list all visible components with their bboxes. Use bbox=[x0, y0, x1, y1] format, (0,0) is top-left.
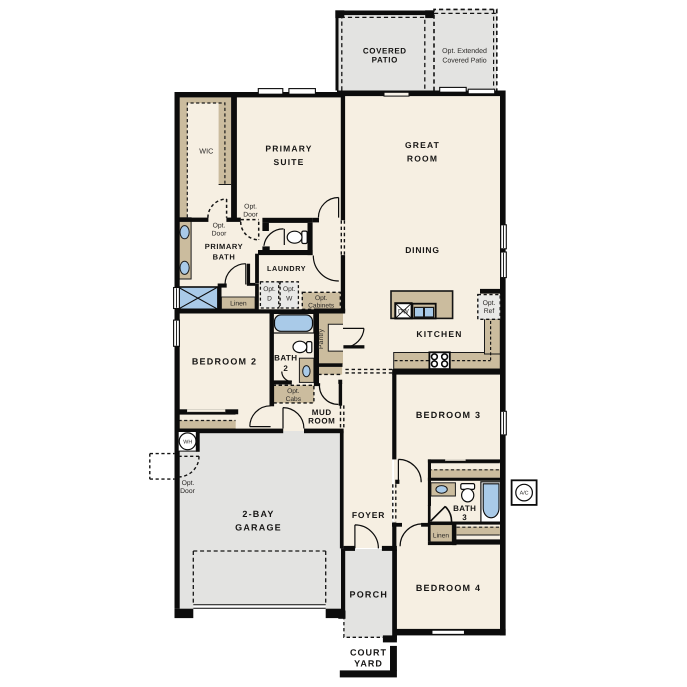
svg-text:2: 2 bbox=[283, 364, 288, 373]
svg-text:Pantry: Pantry bbox=[318, 328, 325, 349]
svg-text:Covered Patio: Covered Patio bbox=[442, 57, 486, 65]
svg-text:W: W bbox=[286, 296, 293, 303]
svg-text:D: D bbox=[267, 296, 272, 303]
svg-text:Opt.: Opt. bbox=[244, 203, 257, 210]
svg-text:WIC: WIC bbox=[199, 147, 213, 156]
svg-text:SUITE: SUITE bbox=[273, 157, 304, 167]
svg-text:PRIMARY: PRIMARY bbox=[265, 144, 312, 154]
svg-text:Opt.: Opt. bbox=[483, 300, 496, 307]
svg-text:Opt.: Opt. bbox=[213, 223, 226, 230]
svg-text:COURT: COURT bbox=[350, 648, 387, 658]
svg-text:PATIO: PATIO bbox=[372, 56, 398, 65]
svg-text:Cabinets: Cabinets bbox=[308, 302, 335, 309]
svg-text:Ref: Ref bbox=[484, 308, 495, 315]
svg-text:ROOM: ROOM bbox=[407, 154, 438, 164]
svg-text:PORCH: PORCH bbox=[350, 589, 389, 599]
svg-text:Door: Door bbox=[243, 211, 258, 218]
svg-text:Cabs: Cabs bbox=[286, 396, 302, 403]
svg-text:A/C: A/C bbox=[520, 491, 529, 497]
svg-text:Opt.: Opt. bbox=[315, 295, 328, 302]
svg-text:Opt.: Opt. bbox=[263, 286, 276, 293]
svg-text:LAUNDRY: LAUNDRY bbox=[267, 264, 306, 273]
svg-text:BEDROOM 2: BEDROOM 2 bbox=[192, 356, 257, 366]
svg-text:BEDROOM 4: BEDROOM 4 bbox=[416, 583, 481, 593]
svg-text:COVERED: COVERED bbox=[363, 46, 407, 55]
svg-text:Linen: Linen bbox=[230, 301, 247, 308]
svg-text:KITCHEN: KITCHEN bbox=[416, 329, 462, 339]
svg-text:DW: DW bbox=[398, 309, 410, 316]
svg-text:Opt. Extended: Opt. Extended bbox=[442, 47, 487, 55]
svg-text:3: 3 bbox=[462, 513, 467, 522]
svg-text:Linen: Linen bbox=[433, 532, 449, 539]
svg-text:Door: Door bbox=[212, 231, 227, 238]
svg-text:WH: WH bbox=[183, 440, 192, 446]
svg-text:BATH: BATH bbox=[453, 504, 476, 513]
svg-text:Opt.: Opt. bbox=[283, 286, 296, 293]
svg-text:GARAGE: GARAGE bbox=[235, 523, 282, 533]
svg-text:Opt.: Opt. bbox=[182, 480, 195, 487]
svg-text:BATH: BATH bbox=[274, 353, 297, 362]
svg-text:Opt.: Opt. bbox=[287, 388, 300, 395]
svg-text:FOYER: FOYER bbox=[352, 510, 385, 520]
svg-text:ROOM: ROOM bbox=[308, 416, 335, 425]
svg-text:YARD: YARD bbox=[354, 659, 383, 669]
svg-text:Door: Door bbox=[180, 488, 195, 495]
svg-text:PRIMARY: PRIMARY bbox=[205, 242, 244, 251]
svg-text:2-BAY: 2-BAY bbox=[242, 509, 274, 519]
svg-text:BEDROOM 3: BEDROOM 3 bbox=[416, 410, 481, 420]
svg-text:BATH: BATH bbox=[213, 252, 236, 261]
svg-text:GREAT: GREAT bbox=[405, 140, 440, 150]
svg-text:DINING: DINING bbox=[405, 245, 440, 255]
